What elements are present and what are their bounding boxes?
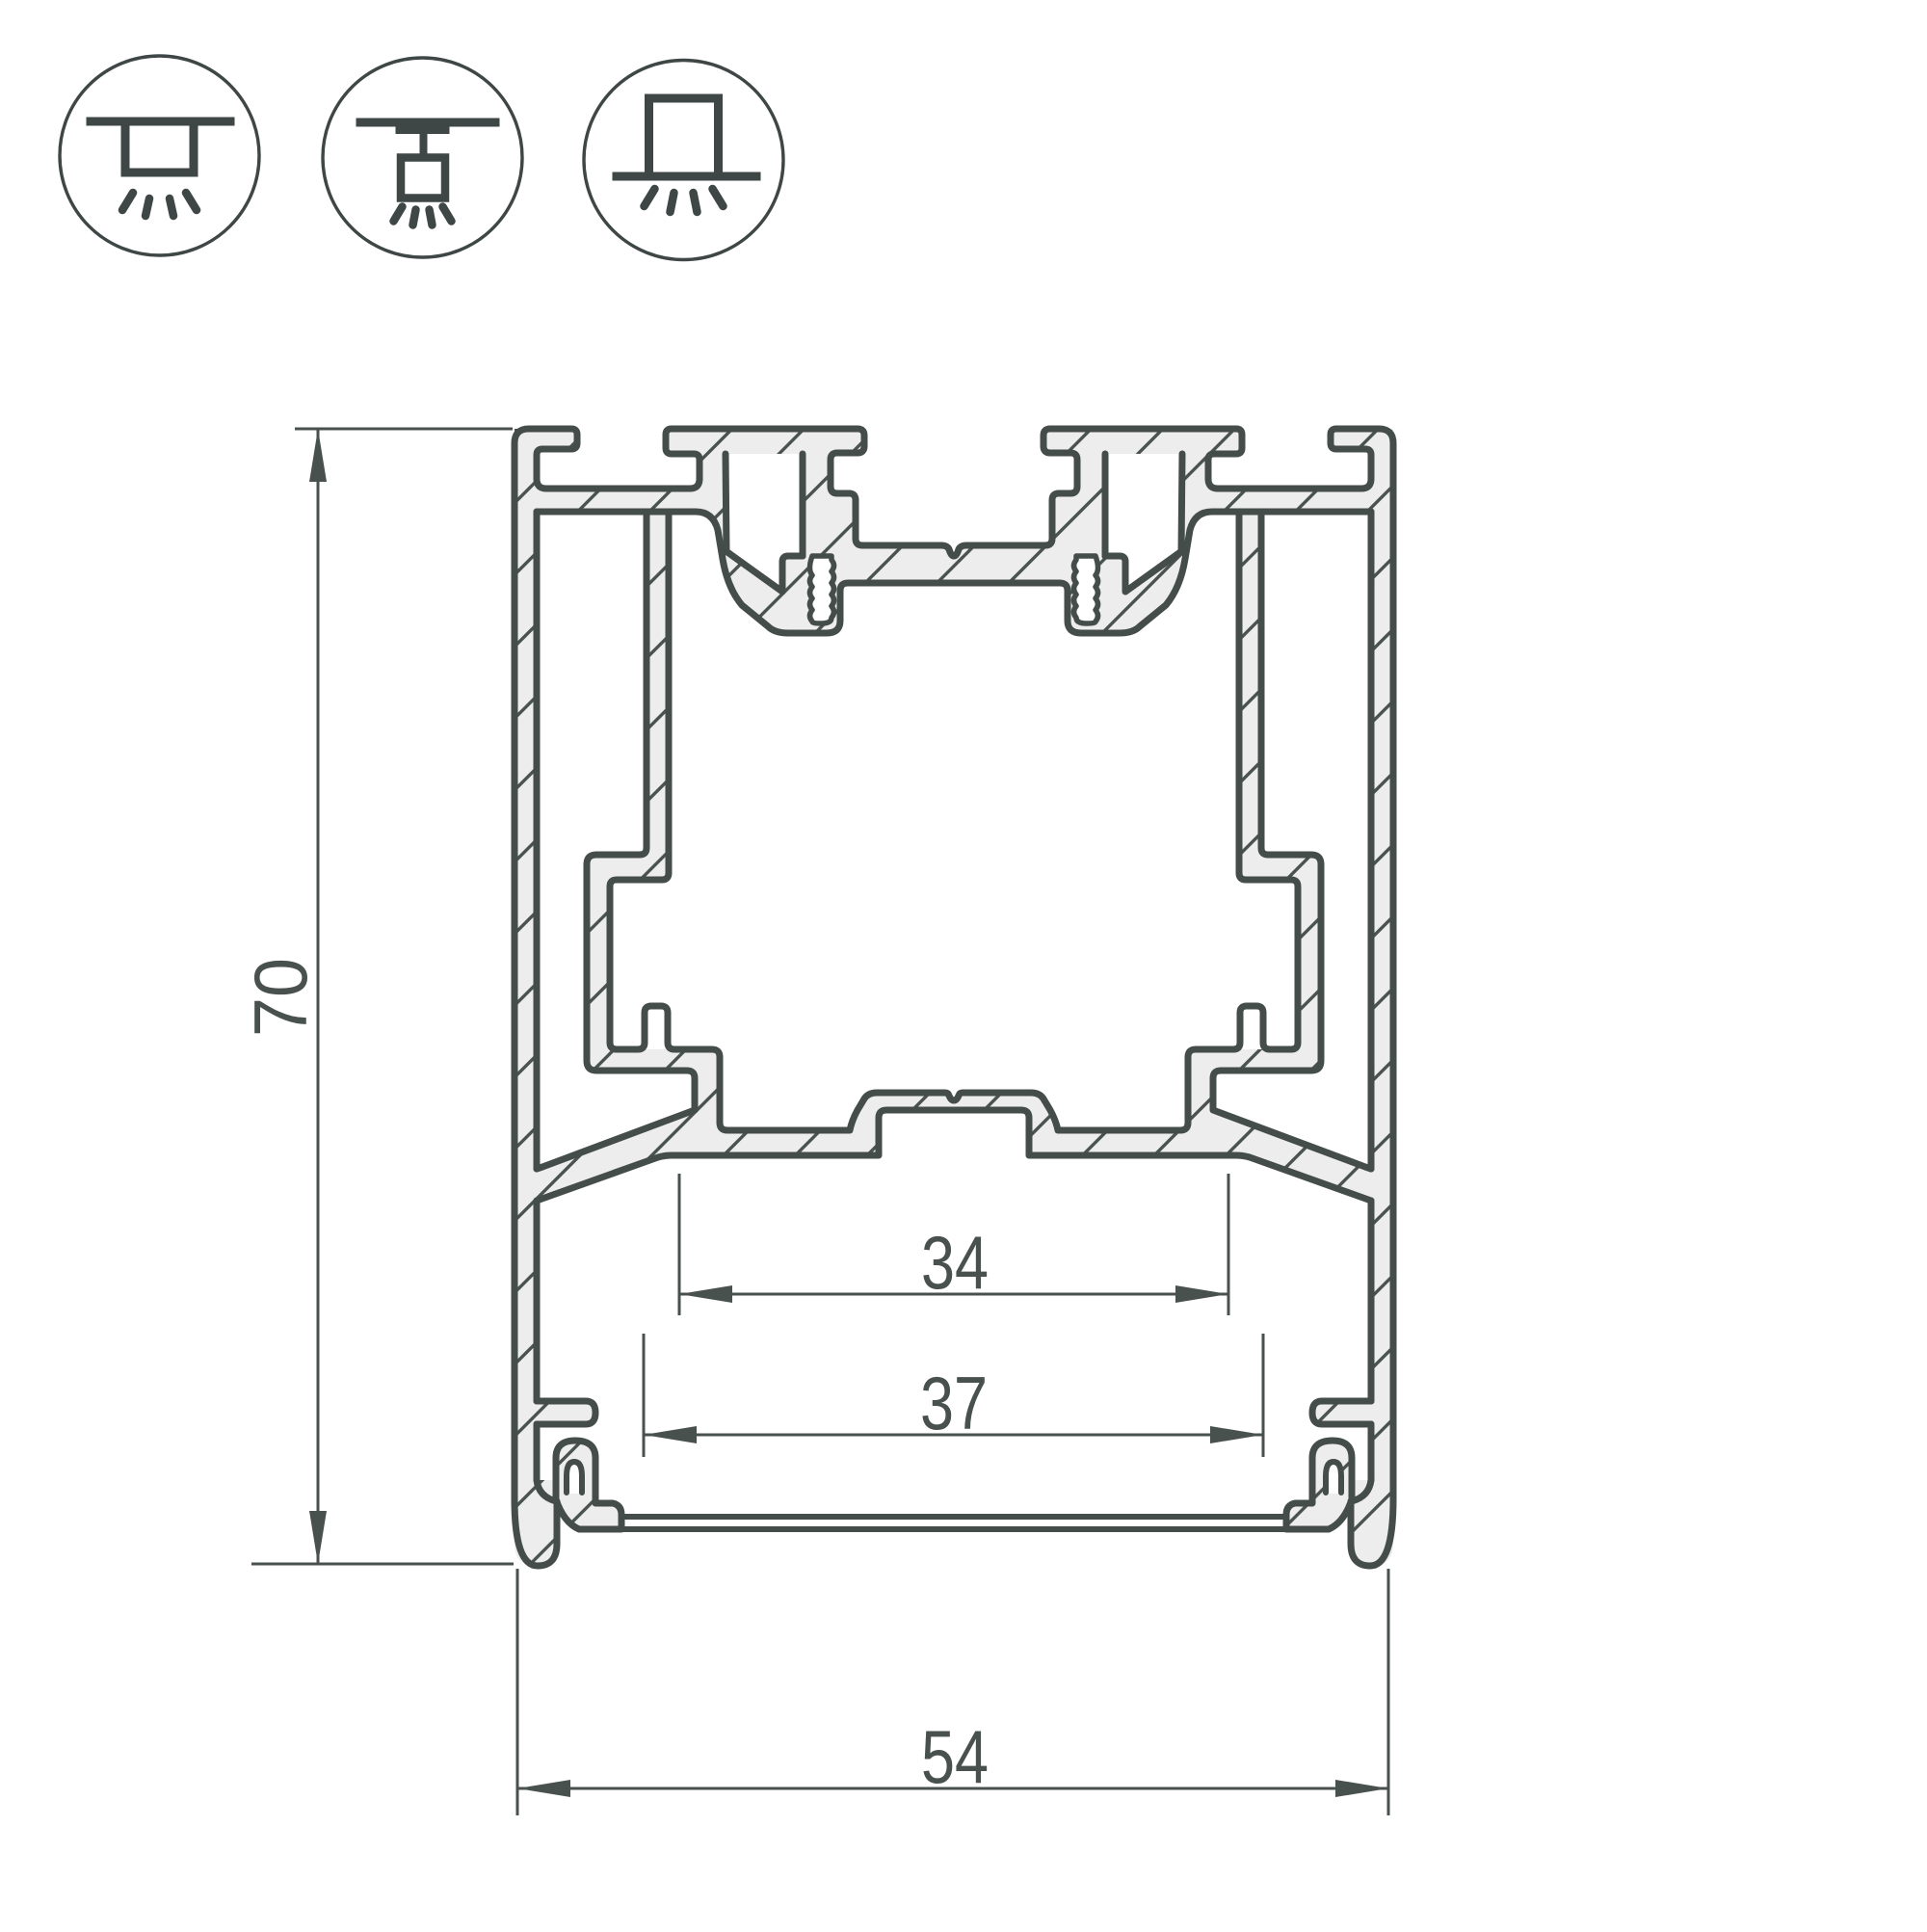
svg-text:37: 37 [920, 1361, 988, 1445]
svg-text:54: 54 [921, 1714, 989, 1799]
svg-text:70: 70 [238, 958, 323, 1037]
svg-text:34: 34 [921, 1220, 989, 1305]
